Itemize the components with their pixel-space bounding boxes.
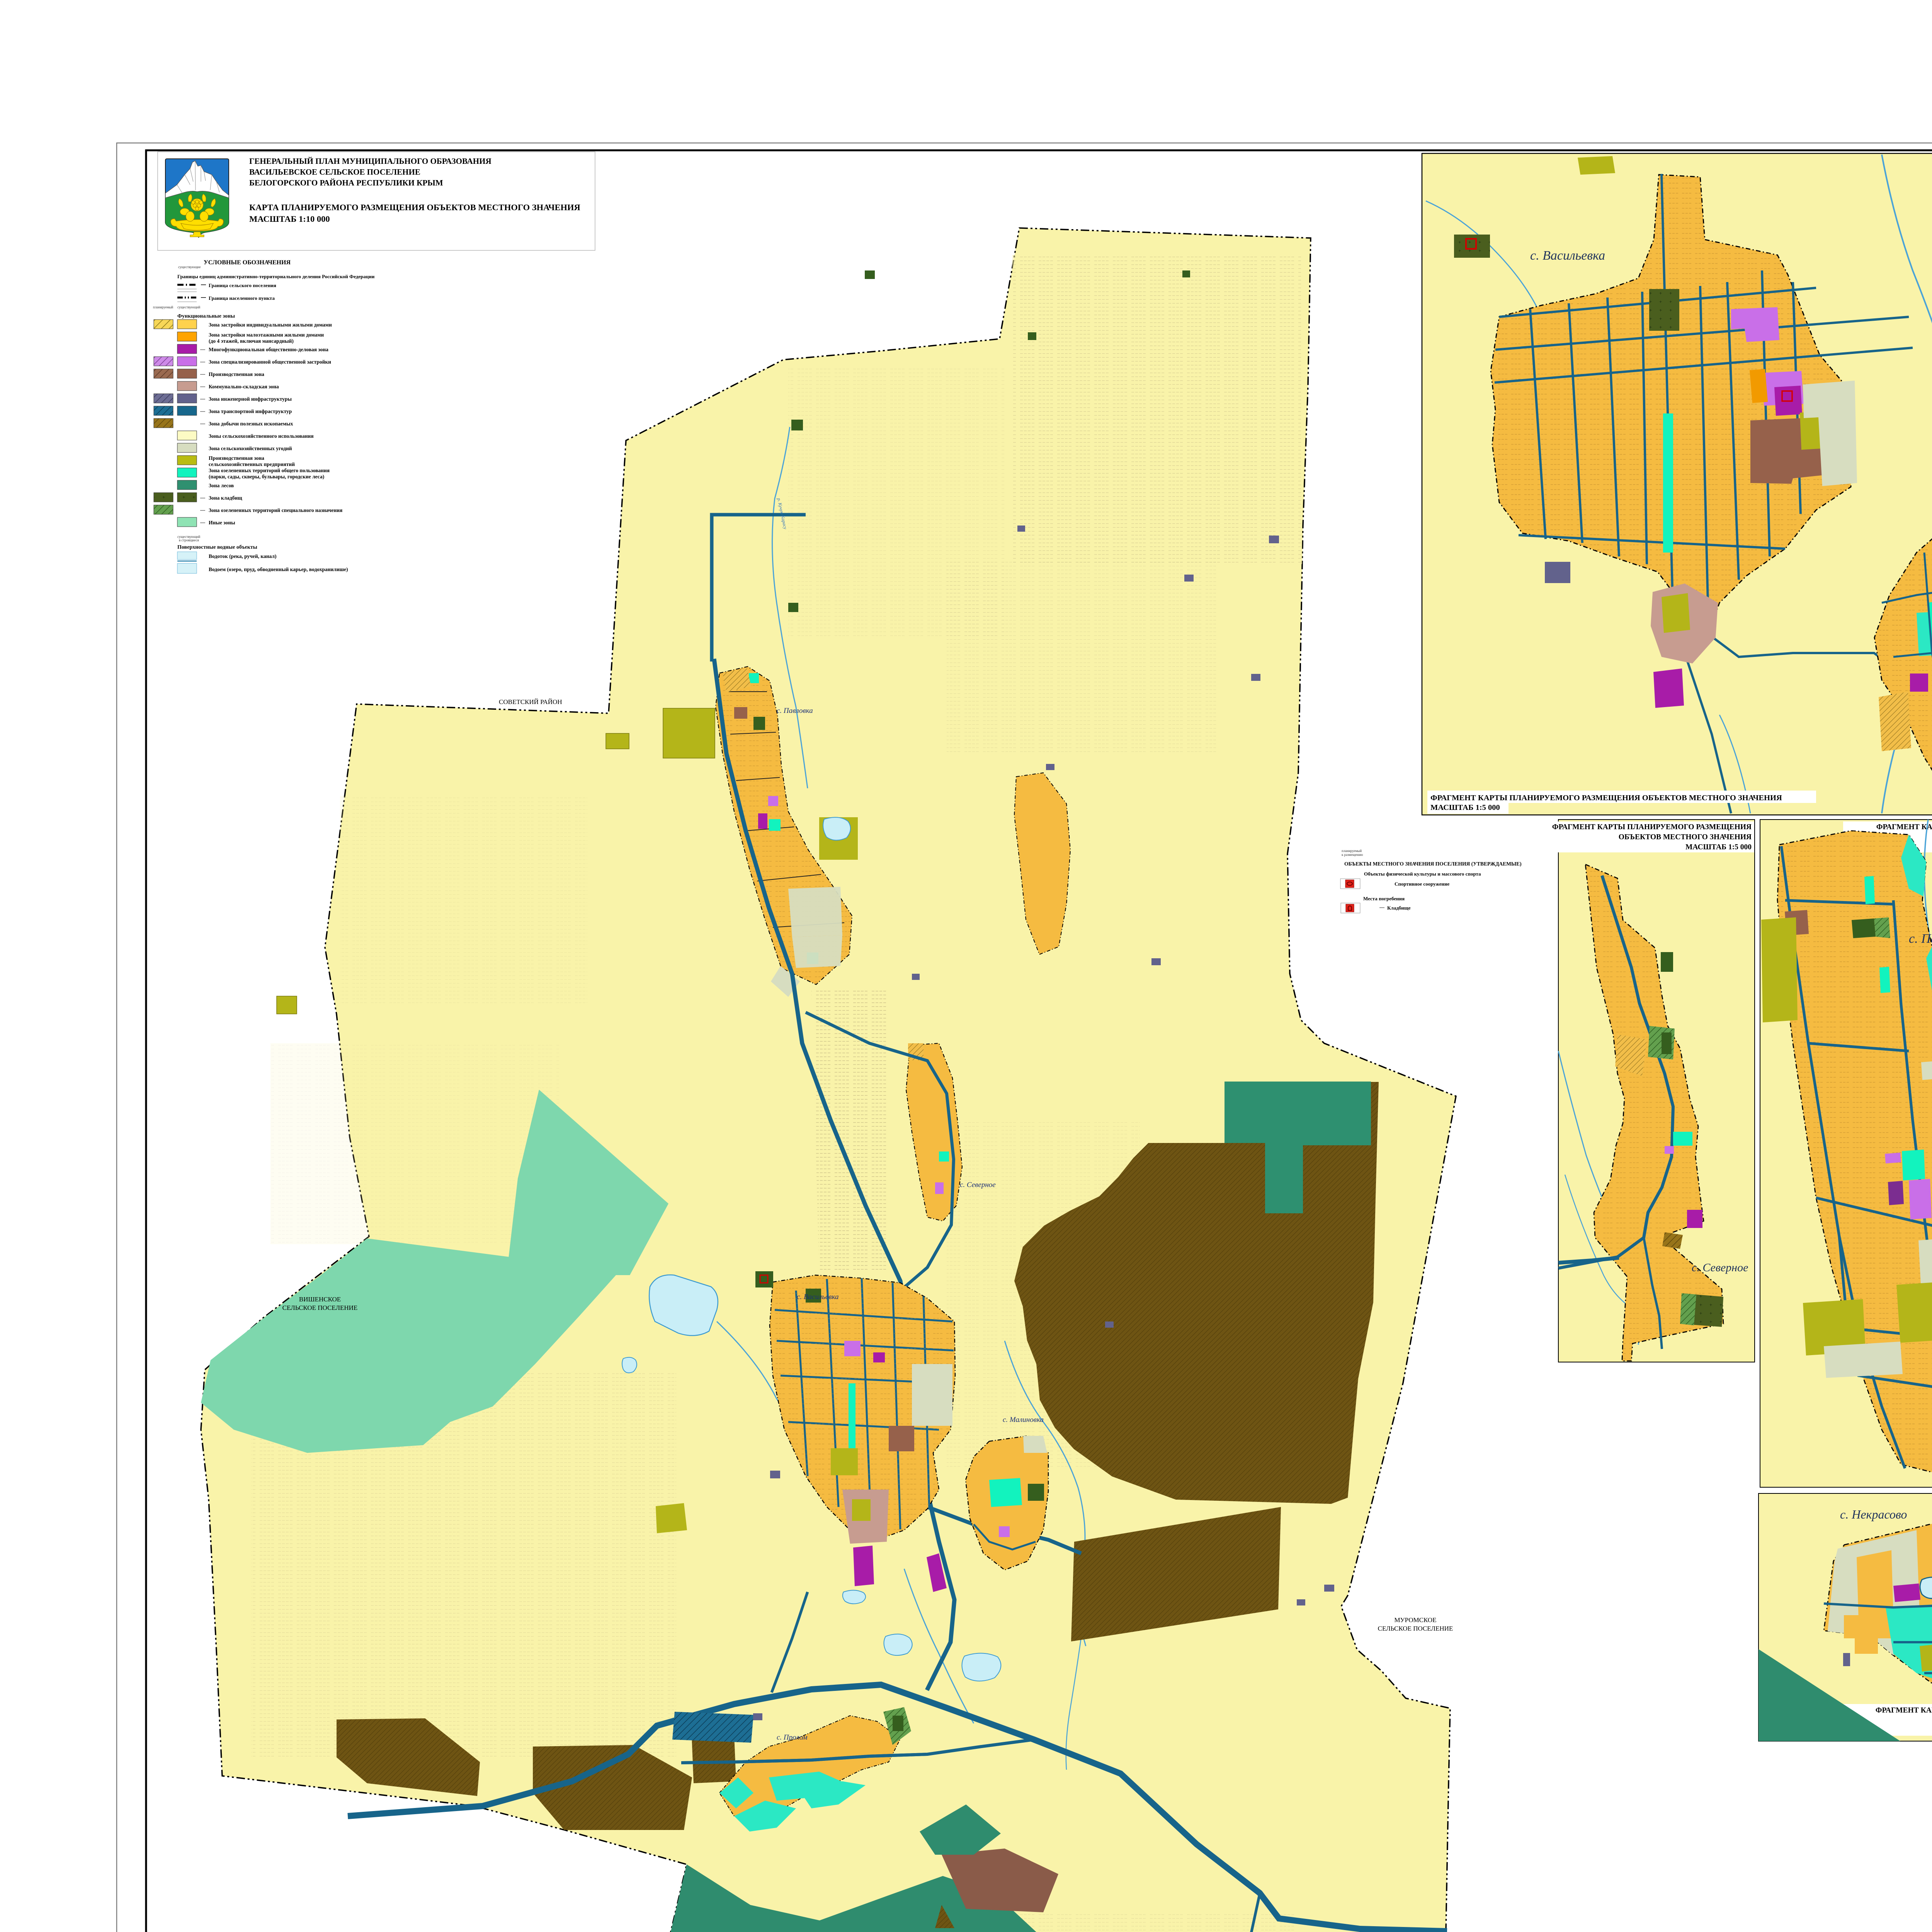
svg-text:(до 4 этажей, включая мансардн: (до 4 этажей, включая мансардный) xyxy=(209,338,294,344)
svg-text:Граница сельского поселения: Граница сельского поселения xyxy=(209,282,276,288)
svg-text:в строящиеся: в строящиеся xyxy=(179,538,199,542)
svg-text:Водоем (озеро, пруд, обводненн: Водоем (озеро, пруд, обводненный карьер,… xyxy=(209,566,348,572)
svg-text:с. Павловка: с. Павловка xyxy=(1909,932,1932,946)
svg-text:Зона кладбищ: Зона кладбищ xyxy=(209,495,242,501)
svg-text:ФРАГМЕНТ КАРТЫ ПЛАНИРУЕМОГО РА: ФРАГМЕНТ КАРТЫ ПЛАНИРУЕМОГО РАЗМЕЩЕНИЯ xyxy=(1552,823,1752,831)
svg-text:КАРТА ПЛАНИРУЕМОГО РАЗМЕЩЕНИЯ: КАРТА ПЛАНИРУЕМОГО РАЗМЕЩЕНИЯ ОБЪЕКТОВ М… xyxy=(249,202,580,212)
svg-text:ВИШЕНСКОЕ: ВИШЕНСКОЕ xyxy=(299,1296,341,1303)
svg-text:с. Васильевка: с. Васильевка xyxy=(1530,248,1605,263)
svg-text:Многофункциональная общественн: Многофункциональная общественно-деловая … xyxy=(209,347,328,352)
svg-text:Зона специализированной общест: Зона специализированной общественной зас… xyxy=(209,359,331,365)
svg-text:ОБЪЕКТЫ МЕСТНОГО ЗНАЧЕНИЯ ПОСЕ: ОБЪЕКТЫ МЕСТНОГО ЗНАЧЕНИЯ ПОСЕЛЕНИЯ (УТВ… xyxy=(1344,861,1522,867)
svg-text:Места погребения: Места погребения xyxy=(1363,896,1405,901)
svg-text:БЕЛОГОРСКОГО РАЙОНА РЕСПУБЛИКИ: БЕЛОГОРСКОГО РАЙОНА РЕСПУБЛИКИ КРЫМ xyxy=(249,178,443,187)
svg-text:ОБЪЕКТОВ МЕСТНОГО ЗНАЧЕНИЯ: ОБЪЕКТОВ МЕСТНОГО ЗНАЧЕНИЯ xyxy=(1619,833,1752,841)
svg-text:МУРОМСКОЕ: МУРОМСКОЕ xyxy=(1394,1616,1436,1624)
svg-text:с. Северное: с. Северное xyxy=(960,1181,996,1189)
svg-text:ГЕНЕРАЛЬНЫЙ ПЛАН МУНИЦИПАЛЬНОГ: ГЕНЕРАЛЬНЫЙ ПЛАН МУНИЦИПАЛЬНОГО ОБРАЗОВА… xyxy=(249,156,492,166)
svg-text:МАСШТАБ 1:10 000: МАСШТАБ 1:10 000 xyxy=(249,214,330,224)
svg-text:УСЛОВНЫЕ ОБОЗНАЧЕНИЯ: УСЛОВНЫЕ ОБОЗНАЧЕНИЯ xyxy=(204,259,291,266)
svg-text:планируемый: планируемый xyxy=(153,305,173,309)
svg-text:Граница населенного пункта: Граница населенного пункта xyxy=(209,295,275,301)
svg-text:Иные зоны: Иные зоны xyxy=(209,520,235,526)
svg-text:Зона озелененных территорий сп: Зона озелененных территорий специального… xyxy=(209,507,342,513)
svg-text:ФРАГМЕНТ КАРТЫ ПЛАНИРУЕМОГО РА: ФРАГМЕНТ КАРТЫ ПЛАНИРУЕМОГО РАЗМЕЩЕНИЯ xyxy=(1876,1706,1932,1714)
svg-text:сельскохозяйственных предприят: сельскохозяйственных предприятий xyxy=(209,461,295,467)
svg-text:Зона застройки малоэтажными жи: Зона застройки малоэтажными жилыми домам… xyxy=(209,332,324,338)
svg-text:Зона добычи полезных ископаемы: Зона добычи полезных ископаемых xyxy=(209,421,293,427)
svg-text:с. Пролом: с. Пролом xyxy=(777,1733,808,1742)
svg-text:Производственная зона: Производственная зона xyxy=(209,455,264,461)
svg-text:МАСШТАБ 1:5 000: МАСШТАБ 1:5 000 xyxy=(1685,843,1752,851)
svg-text:Границы единиц административно: Границы единиц административно-территори… xyxy=(177,274,375,279)
svg-text:Зона застройки индивидуальными: Зона застройки индивидуальными жилыми до… xyxy=(209,322,332,328)
svg-text:Зоны сельскохозяйственного исп: Зоны сельскохозяйственного использования xyxy=(209,433,314,439)
svg-text:с. Павловка: с. Павловка xyxy=(777,707,813,715)
svg-text:планируемый: планируемый xyxy=(1342,849,1362,853)
svg-text:Зона сельскохозяйственных угод: Зона сельскохозяйственных угодий xyxy=(209,446,292,451)
svg-text:Объекты физической культуры и: Объекты физической культуры и массового … xyxy=(1364,871,1481,877)
svg-text:с. Малиновка: с. Малиновка xyxy=(1003,1416,1044,1424)
svg-text:Функциональные зоны: Функциональные зоны xyxy=(177,313,235,319)
svg-text:существующие: существующие xyxy=(178,265,201,269)
svg-text:СОВЕТСКИЙ РАЙОН: СОВЕТСКИЙ РАЙОН xyxy=(499,698,562,706)
svg-text:Поверхностные водные объекты: Поверхностные водные объекты xyxy=(177,544,257,550)
svg-text:Кладбище: Кладбище xyxy=(1387,905,1411,911)
svg-text:Зона инженерной инфраструктуры: Зона инженерной инфраструктуры xyxy=(209,396,292,402)
svg-text:к размещению: к размещению xyxy=(1342,853,1363,857)
svg-text:Зона озелененных территорий об: Зона озелененных территорий общего польз… xyxy=(209,468,330,473)
svg-text:(парки, сады, скверы, бульвары: (парки, сады, скверы, бульвары, городски… xyxy=(209,474,324,480)
svg-text:существующий: существующий xyxy=(177,305,200,309)
svg-text:Зона лесов: Зона лесов xyxy=(209,483,234,488)
svg-text:ФРАГМЕНТ КАРТЫ ПЛАНИРУЕМОГО РА: ФРАГМЕНТ КАРТЫ ПЛАНИРУЕМОГО РАЗМЕЩЕНИЯ xyxy=(1876,823,1932,831)
svg-text:ФРАГМЕНТ КАРТЫ ПЛАНИРУЕМОГО РА: ФРАГМЕНТ КАРТЫ ПЛАНИРУЕМОГО РАЗМЕЩЕНИЯ О… xyxy=(1430,794,1782,802)
svg-text:Коммунально-складская зона: Коммунально-складская зона xyxy=(209,384,279,389)
svg-text:ВАСИЛЬЕВСКОЕ СЕЛЬСКОЕ ПОСЕЛЕНИ: ВАСИЛЬЕВСКОЕ СЕЛЬСКОЕ ПОСЕЛЕНИЕ xyxy=(249,167,420,177)
svg-text:Зона транспортной инфраструкту: Зона транспортной инфраструктур xyxy=(209,408,292,414)
svg-text:СЕЛЬСКОЕ ПОСЕЛЕНИЕ: СЕЛЬСКОЕ ПОСЕЛЕНИЕ xyxy=(1378,1625,1453,1632)
svg-text:с. Васильевка: с. Васильевка xyxy=(797,1293,839,1301)
svg-text:Производственная зона: Производственная зона xyxy=(209,371,264,377)
svg-text:Спортивное сооружение: Спортивное сооружение xyxy=(1395,881,1450,887)
svg-text:Водоток (река, ручей, канал): Водоток (река, ручей, канал) xyxy=(209,553,276,559)
svg-text:с. Северное: с. Северное xyxy=(1692,1261,1748,1274)
svg-text:СЕЛЬСКОЕ ПОСЕЛЕНИЕ: СЕЛЬСКОЕ ПОСЕЛЕНИЕ xyxy=(282,1304,358,1311)
svg-text:с. Некрасово: с. Некрасово xyxy=(1840,1507,1907,1521)
svg-text:МАСШТАБ 1:5 000: МАСШТАБ 1:5 000 xyxy=(1430,803,1500,812)
